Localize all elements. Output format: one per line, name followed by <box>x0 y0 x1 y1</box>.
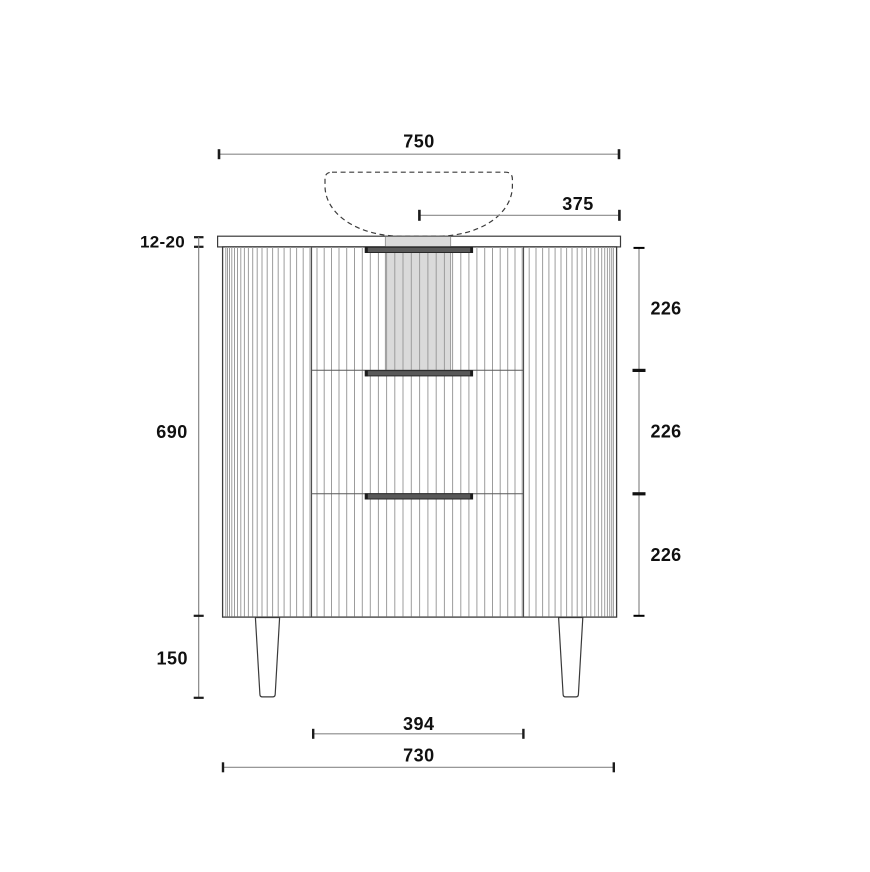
svg-text:226: 226 <box>651 545 682 565</box>
svg-text:690: 690 <box>156 422 188 442</box>
svg-text:730: 730 <box>403 745 435 765</box>
svg-text:375: 375 <box>562 194 594 214</box>
svg-text:394: 394 <box>403 714 435 734</box>
svg-text:750: 750 <box>403 132 435 152</box>
svg-text:150: 150 <box>157 649 189 669</box>
svg-text:12-20: 12-20 <box>140 232 185 251</box>
svg-text:226: 226 <box>651 298 682 318</box>
svg-text:226: 226 <box>651 422 682 442</box>
